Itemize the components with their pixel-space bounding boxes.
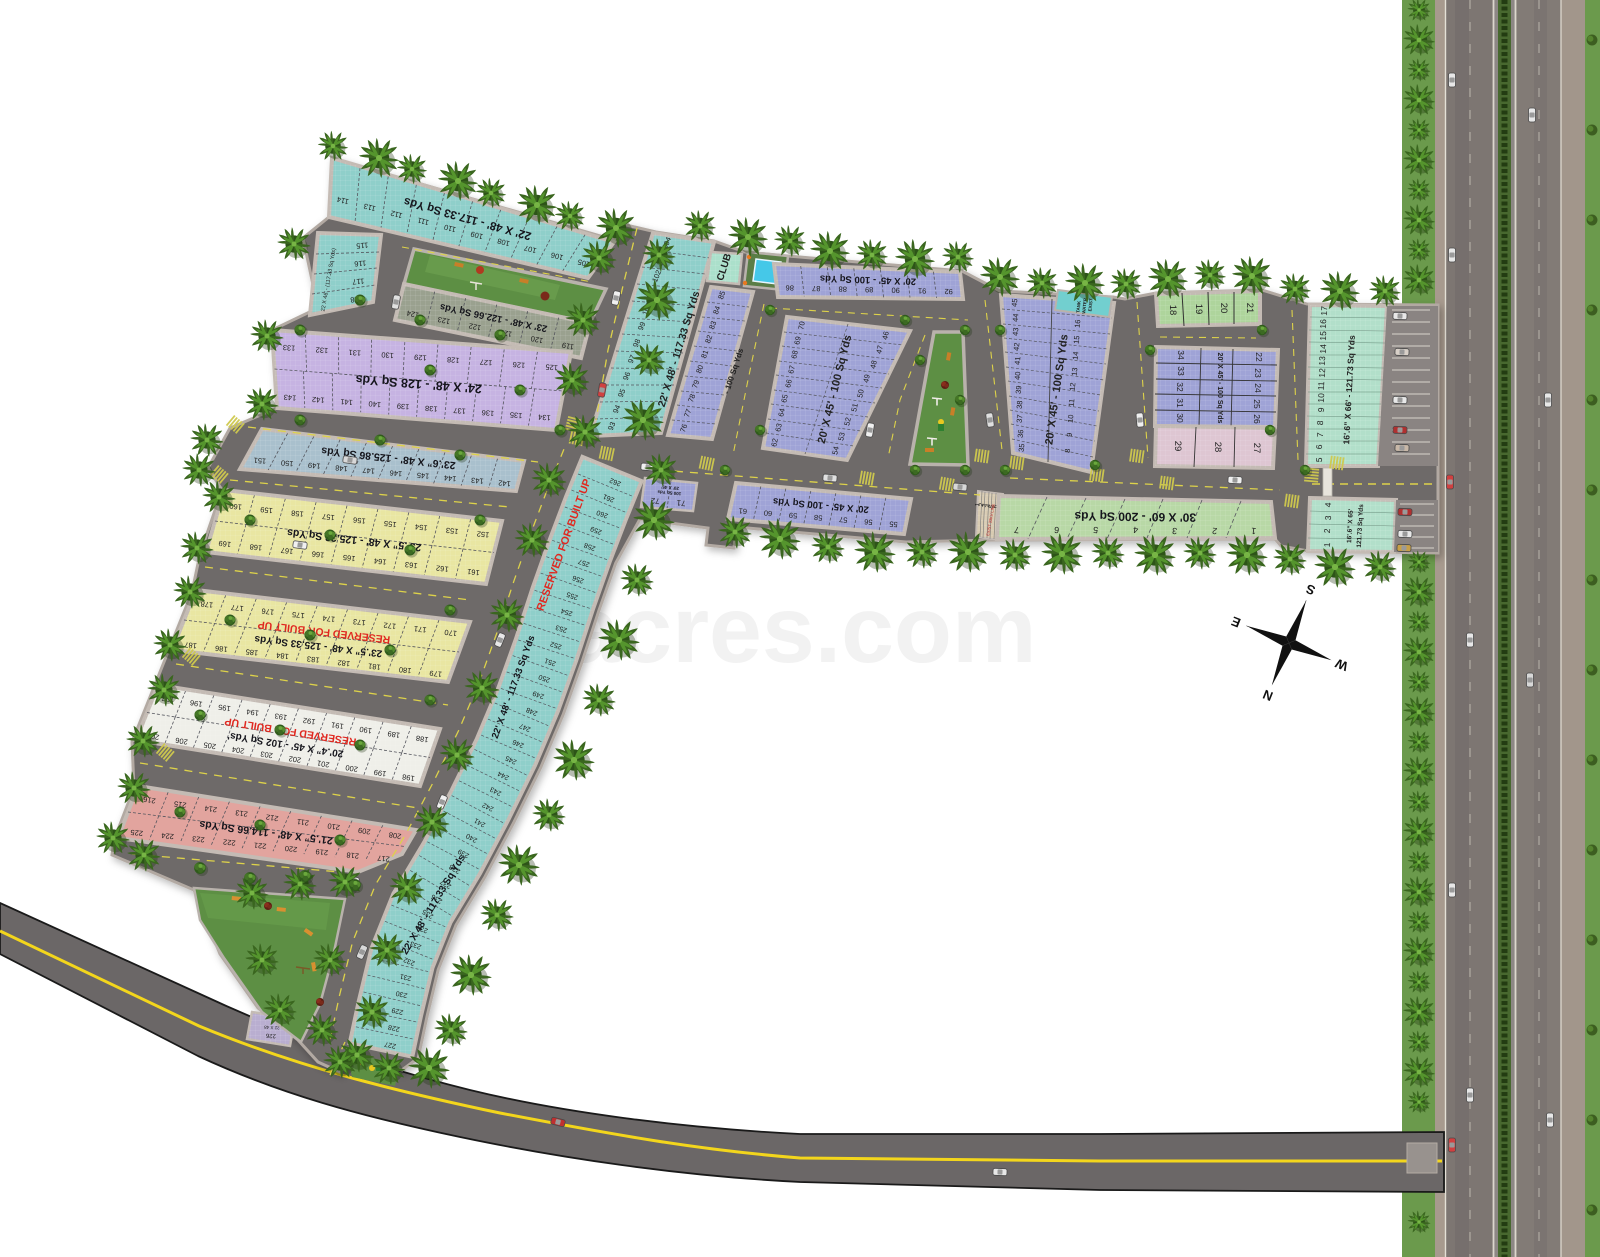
- svg-text:147: 147: [362, 466, 375, 476]
- svg-text:209: 209: [358, 826, 372, 837]
- svg-text:222: 222: [223, 837, 236, 847]
- svg-text:133: 133: [283, 343, 296, 353]
- svg-text:29: 29: [1172, 441, 1183, 452]
- svg-text:20: 20: [1218, 303, 1229, 314]
- svg-text:13: 13: [1070, 367, 1080, 376]
- svg-text:129: 129: [414, 353, 427, 363]
- svg-text:10: 10: [1316, 393, 1326, 403]
- svg-text:158: 158: [291, 508, 304, 518]
- svg-text:21: 21: [1244, 303, 1255, 314]
- svg-text:12: 12: [1068, 382, 1078, 391]
- svg-text:17: 17: [1319, 306, 1329, 316]
- svg-text:86: 86: [785, 283, 794, 292]
- svg-text:220: 220: [284, 844, 297, 854]
- svg-text:192: 192: [302, 716, 316, 727]
- svg-text:153: 153: [445, 526, 458, 536]
- svg-text:132: 132: [315, 345, 328, 355]
- svg-text:155: 155: [384, 519, 397, 529]
- svg-text:7: 7: [1315, 432, 1325, 438]
- svg-text:117: 117: [352, 276, 365, 286]
- svg-text:25: 25: [1252, 399, 1262, 409]
- svg-text:58: 58: [814, 513, 823, 523]
- svg-text:138: 138: [425, 404, 438, 414]
- svg-text:219: 219: [315, 847, 328, 857]
- svg-text:127: 127: [479, 357, 492, 367]
- svg-text:42: 42: [1012, 342, 1022, 351]
- svg-text:175: 175: [292, 610, 305, 620]
- svg-text:136: 136: [481, 408, 494, 418]
- svg-text:143: 143: [471, 476, 484, 486]
- svg-text:5: 5: [1314, 457, 1324, 463]
- svg-text:2: 2: [1322, 528, 1332, 534]
- svg-text:30' X 60' - 200 Sq Yds: 30' X 60' - 200 Sq Yds: [1074, 509, 1196, 524]
- svg-text:143: 143: [283, 393, 296, 403]
- svg-text:61: 61: [738, 506, 747, 516]
- svg-text:154: 154: [415, 522, 428, 532]
- svg-text:162: 162: [436, 563, 449, 573]
- svg-text:35: 35: [1017, 443, 1027, 452]
- svg-text:6: 6: [1314, 444, 1324, 450]
- svg-text:130: 130: [381, 350, 394, 360]
- svg-text:217: 217: [377, 853, 390, 863]
- svg-text:148: 148: [335, 463, 348, 473]
- svg-text:59: 59: [789, 511, 798, 521]
- svg-text:218: 218: [346, 850, 359, 860]
- svg-text:169: 169: [218, 539, 231, 549]
- svg-text:142: 142: [498, 478, 511, 488]
- svg-text:27: 27: [1251, 443, 1262, 454]
- svg-text:90: 90: [891, 286, 900, 295]
- svg-text:13: 13: [1317, 356, 1327, 366]
- svg-text:22 X 48: 22 X 48: [264, 1025, 280, 1031]
- svg-text:214: 214: [204, 804, 218, 815]
- svg-text:149: 149: [308, 461, 321, 471]
- svg-text:224: 224: [161, 831, 174, 841]
- svg-text:71: 71: [676, 498, 686, 508]
- svg-text:172: 172: [383, 621, 396, 631]
- svg-text:115: 115: [356, 240, 369, 250]
- svg-text:31: 31: [1175, 398, 1185, 408]
- svg-text:152: 152: [476, 529, 489, 539]
- svg-text:159: 159: [260, 505, 273, 515]
- svg-text:174: 174: [322, 613, 335, 623]
- svg-text:15: 15: [1072, 335, 1082, 344]
- svg-text:196: 196: [189, 698, 203, 709]
- svg-text:166: 166: [311, 549, 324, 559]
- svg-text:212: 212: [265, 812, 279, 823]
- svg-text:173: 173: [353, 617, 366, 627]
- svg-text:223: 223: [192, 834, 205, 844]
- svg-text:221: 221: [253, 841, 266, 851]
- svg-text:32: 32: [1175, 382, 1185, 392]
- svg-text:34: 34: [1176, 350, 1186, 360]
- svg-text:182: 182: [337, 658, 350, 668]
- svg-text:144: 144: [444, 473, 457, 483]
- svg-text:16: 16: [1073, 319, 1083, 328]
- svg-text:45: 45: [1010, 298, 1020, 307]
- svg-text:131: 131: [348, 348, 361, 358]
- svg-text:55: 55: [889, 519, 898, 529]
- svg-text:156: 156: [353, 515, 366, 525]
- svg-text:141: 141: [340, 397, 353, 407]
- svg-text:92: 92: [944, 287, 953, 296]
- svg-text:8: 8: [1315, 420, 1325, 426]
- svg-text:20' X 45' - 100 Sq Yds: 20' X 45' - 100 Sq Yds: [1216, 353, 1223, 424]
- svg-text:145: 145: [416, 471, 429, 481]
- svg-text:14: 14: [1071, 351, 1081, 360]
- svg-text:88: 88: [838, 285, 847, 294]
- svg-text:38: 38: [1015, 400, 1025, 409]
- svg-text:134: 134: [538, 412, 551, 422]
- svg-text:23: 23: [1253, 368, 1263, 378]
- svg-text:168: 168: [249, 542, 262, 552]
- svg-text:142: 142: [312, 395, 325, 405]
- svg-text:60: 60: [763, 508, 772, 518]
- svg-text:126: 126: [512, 360, 525, 370]
- svg-text:210: 210: [327, 821, 341, 832]
- svg-text:16: 16: [1318, 319, 1328, 329]
- svg-text:37: 37: [1015, 414, 1025, 423]
- svg-text:15: 15: [1318, 331, 1328, 341]
- svg-text:183: 183: [306, 654, 319, 664]
- svg-text:167: 167: [280, 546, 293, 556]
- svg-text:22: 22: [1254, 352, 1264, 362]
- svg-text:89: 89: [865, 285, 874, 294]
- svg-text:190: 190: [359, 725, 373, 736]
- svg-text:24: 24: [1253, 383, 1263, 393]
- svg-text:191: 191: [331, 720, 345, 731]
- svg-text:56: 56: [864, 517, 873, 527]
- svg-text:57: 57: [839, 515, 848, 525]
- svg-text:151: 151: [253, 456, 266, 466]
- svg-text:193: 193: [274, 711, 288, 722]
- svg-text:213: 213: [235, 808, 249, 819]
- svg-text:9: 9: [1316, 407, 1326, 413]
- svg-text:11: 11: [1067, 398, 1077, 407]
- svg-text:176: 176: [261, 606, 274, 616]
- svg-text:43: 43: [1011, 327, 1021, 336]
- svg-text:26: 26: [1252, 414, 1262, 424]
- svg-text:188: 188: [415, 734, 429, 745]
- svg-text:135: 135: [510, 410, 523, 420]
- svg-text:137: 137: [453, 406, 466, 416]
- svg-text:1: 1: [1322, 542, 1332, 548]
- svg-text:177: 177: [231, 603, 244, 613]
- svg-text:194: 194: [246, 707, 260, 718]
- svg-text:180: 180: [398, 665, 411, 675]
- svg-text:33: 33: [1176, 366, 1186, 376]
- svg-text:12: 12: [1317, 368, 1327, 378]
- svg-text:41: 41: [1013, 356, 1023, 365]
- svg-text:44: 44: [1011, 313, 1021, 322]
- svg-text:189: 189: [387, 729, 401, 740]
- svg-text:3: 3: [1323, 515, 1333, 521]
- svg-text:91: 91: [918, 286, 927, 295]
- svg-text:10: 10: [1066, 414, 1076, 423]
- svg-text:185: 185: [245, 647, 258, 657]
- svg-text:40: 40: [1013, 371, 1023, 380]
- svg-text:186: 186: [215, 644, 228, 654]
- svg-text:116: 116: [354, 258, 367, 268]
- svg-text:211: 211: [296, 817, 309, 828]
- svg-text:163: 163: [404, 560, 417, 570]
- svg-text:87: 87: [812, 284, 821, 293]
- svg-text:146: 146: [389, 468, 402, 478]
- svg-text:39: 39: [1014, 385, 1024, 394]
- svg-text:18: 18: [1167, 305, 1178, 316]
- svg-text:171: 171: [413, 624, 426, 634]
- svg-text:184: 184: [276, 651, 289, 661]
- svg-text:11: 11: [1316, 381, 1326, 391]
- svg-text:19: 19: [1193, 304, 1204, 315]
- svg-text:28: 28: [1212, 442, 1223, 453]
- svg-text:139: 139: [397, 401, 410, 411]
- svg-text:161: 161: [467, 567, 480, 577]
- svg-text:140: 140: [368, 399, 381, 409]
- svg-text:226: 226: [265, 1032, 276, 1039]
- svg-text:14: 14: [1318, 344, 1328, 354]
- svg-text:165: 165: [342, 553, 355, 563]
- svg-text:157: 157: [322, 512, 335, 522]
- svg-text:170: 170: [444, 628, 457, 638]
- svg-text:179: 179: [429, 668, 442, 678]
- svg-text:128: 128: [447, 355, 460, 365]
- svg-text:225: 225: [130, 828, 143, 838]
- svg-text:4: 4: [1323, 502, 1333, 508]
- svg-text:181: 181: [368, 661, 381, 671]
- svg-text:208: 208: [388, 830, 402, 841]
- svg-text:30: 30: [1175, 413, 1185, 423]
- svg-text:36: 36: [1016, 429, 1026, 438]
- svg-text:150: 150: [281, 458, 294, 468]
- svg-text:125: 125: [545, 362, 558, 372]
- svg-text:164: 164: [373, 556, 386, 566]
- svg-text:195: 195: [218, 702, 232, 713]
